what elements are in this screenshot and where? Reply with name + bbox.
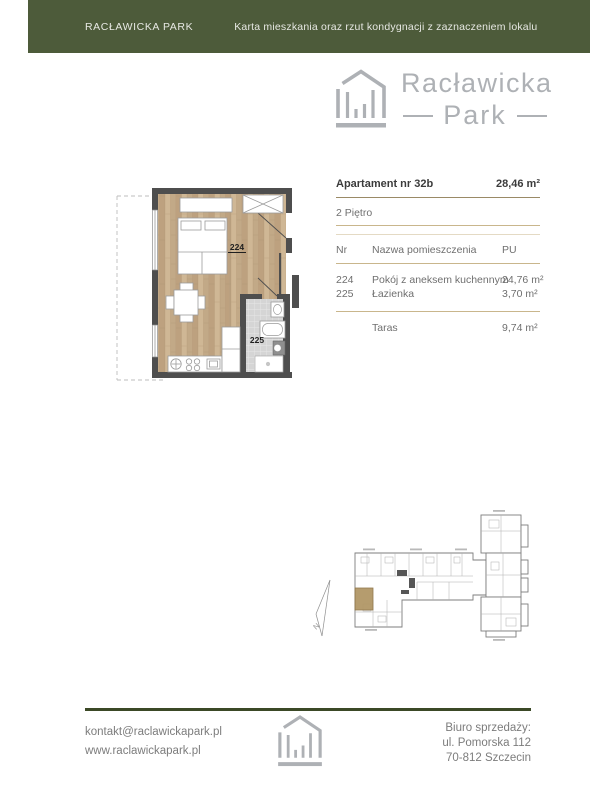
- footer-divider: [85, 708, 531, 711]
- room-rows: 224 Pokój z aneksem kuchennym 24,76 m² 2…: [336, 264, 540, 312]
- apartment-title: Apartament nr 32b: [336, 178, 433, 190]
- kitchen-cabinet: [222, 327, 240, 372]
- brand-name-line1: Racławicka: [401, 68, 549, 98]
- footer-website-link[interactable]: www.raclawickapark.pl: [85, 742, 222, 761]
- north-label: N: [311, 621, 321, 631]
- table-row: 225 Łazienka 3,70 m²: [336, 287, 540, 301]
- apartment-spec-table: Apartament nr 32b 28,46 m² 2 Piętro Nr N…: [336, 178, 540, 334]
- floor-overview-plan: N: [305, 498, 555, 650]
- terrace-area: 9,74 m²: [502, 322, 540, 334]
- table-divider: [336, 226, 540, 235]
- apartment-card-page: RACŁAWICKA PARK Karta mieszkania oraz rz…: [0, 0, 600, 788]
- room-225-label: 225: [250, 335, 264, 345]
- header-brand: RACŁAWICKA PARK: [85, 21, 193, 33]
- wordmark-dash-left: [403, 115, 433, 117]
- brand-name-line2: Park: [443, 100, 507, 131]
- room-area: 3,70 m²: [502, 287, 540, 301]
- room-nr: 224: [336, 273, 372, 287]
- office-label: Biuro sprzedaży:: [442, 721, 531, 736]
- left-wing-outline: [355, 553, 486, 627]
- room-name: Łazienka: [372, 287, 502, 301]
- col-area: PU: [502, 244, 540, 256]
- footer-contact: kontakt@raclawickapark.pl www.raclawicka…: [85, 723, 222, 761]
- room-nr: 225: [336, 287, 372, 301]
- chair: [166, 296, 174, 309]
- office-address-street: ul. Pomorska 112: [442, 736, 531, 751]
- header-document-title: Karta mieszkania oraz rzut kondygnacji z…: [234, 21, 537, 33]
- col-name: Nazwa pomieszczenia: [372, 244, 502, 256]
- header-bar: RACŁAWICKA PARK Karta mieszkania oraz rz…: [28, 0, 590, 53]
- terrace-row: Taras 9,74 m²: [336, 312, 540, 334]
- kitchen-sink-icon: [171, 359, 181, 369]
- house-bars-icon: [272, 714, 328, 770]
- house-bars-icon: [333, 68, 389, 132]
- office-address-city: 70-812 Szczecin: [442, 751, 531, 766]
- room-name: Pokój z aneksem kuchennym: [372, 273, 502, 287]
- shelf: [180, 198, 232, 212]
- terrace-name: Taras: [372, 322, 502, 334]
- room-area: 24,76 m²: [502, 273, 543, 287]
- highlighted-unit: [355, 588, 373, 610]
- room-224-label: 224: [230, 242, 244, 252]
- apartment-title-row: Apartament nr 32b 28,46 m²: [336, 178, 540, 198]
- col-nr: Nr: [336, 244, 372, 256]
- footer-email-link[interactable]: kontakt@raclawickapark.pl: [85, 723, 222, 742]
- apartment-floor-plan: 224 225: [110, 183, 305, 388]
- table-row: 224 Pokój z aneksem kuchennym 24,76 m²: [336, 273, 540, 287]
- footer-logo: [272, 714, 328, 775]
- footer-office: Biuro sprzedaży: ul. Pomorska 112 70-812…: [442, 721, 531, 766]
- brand-wordmark: Racławicka Park: [401, 68, 549, 131]
- apartment-floor: 2 Piętro: [336, 198, 540, 226]
- apartment-total-area: 28,46 m²: [496, 178, 540, 190]
- table-header-row: Nr Nazwa pomieszczenia PU: [336, 235, 540, 264]
- brand-logo: Racławicka Park: [333, 68, 549, 132]
- wordmark-dash-right: [517, 115, 547, 117]
- dining-table: [174, 290, 198, 315]
